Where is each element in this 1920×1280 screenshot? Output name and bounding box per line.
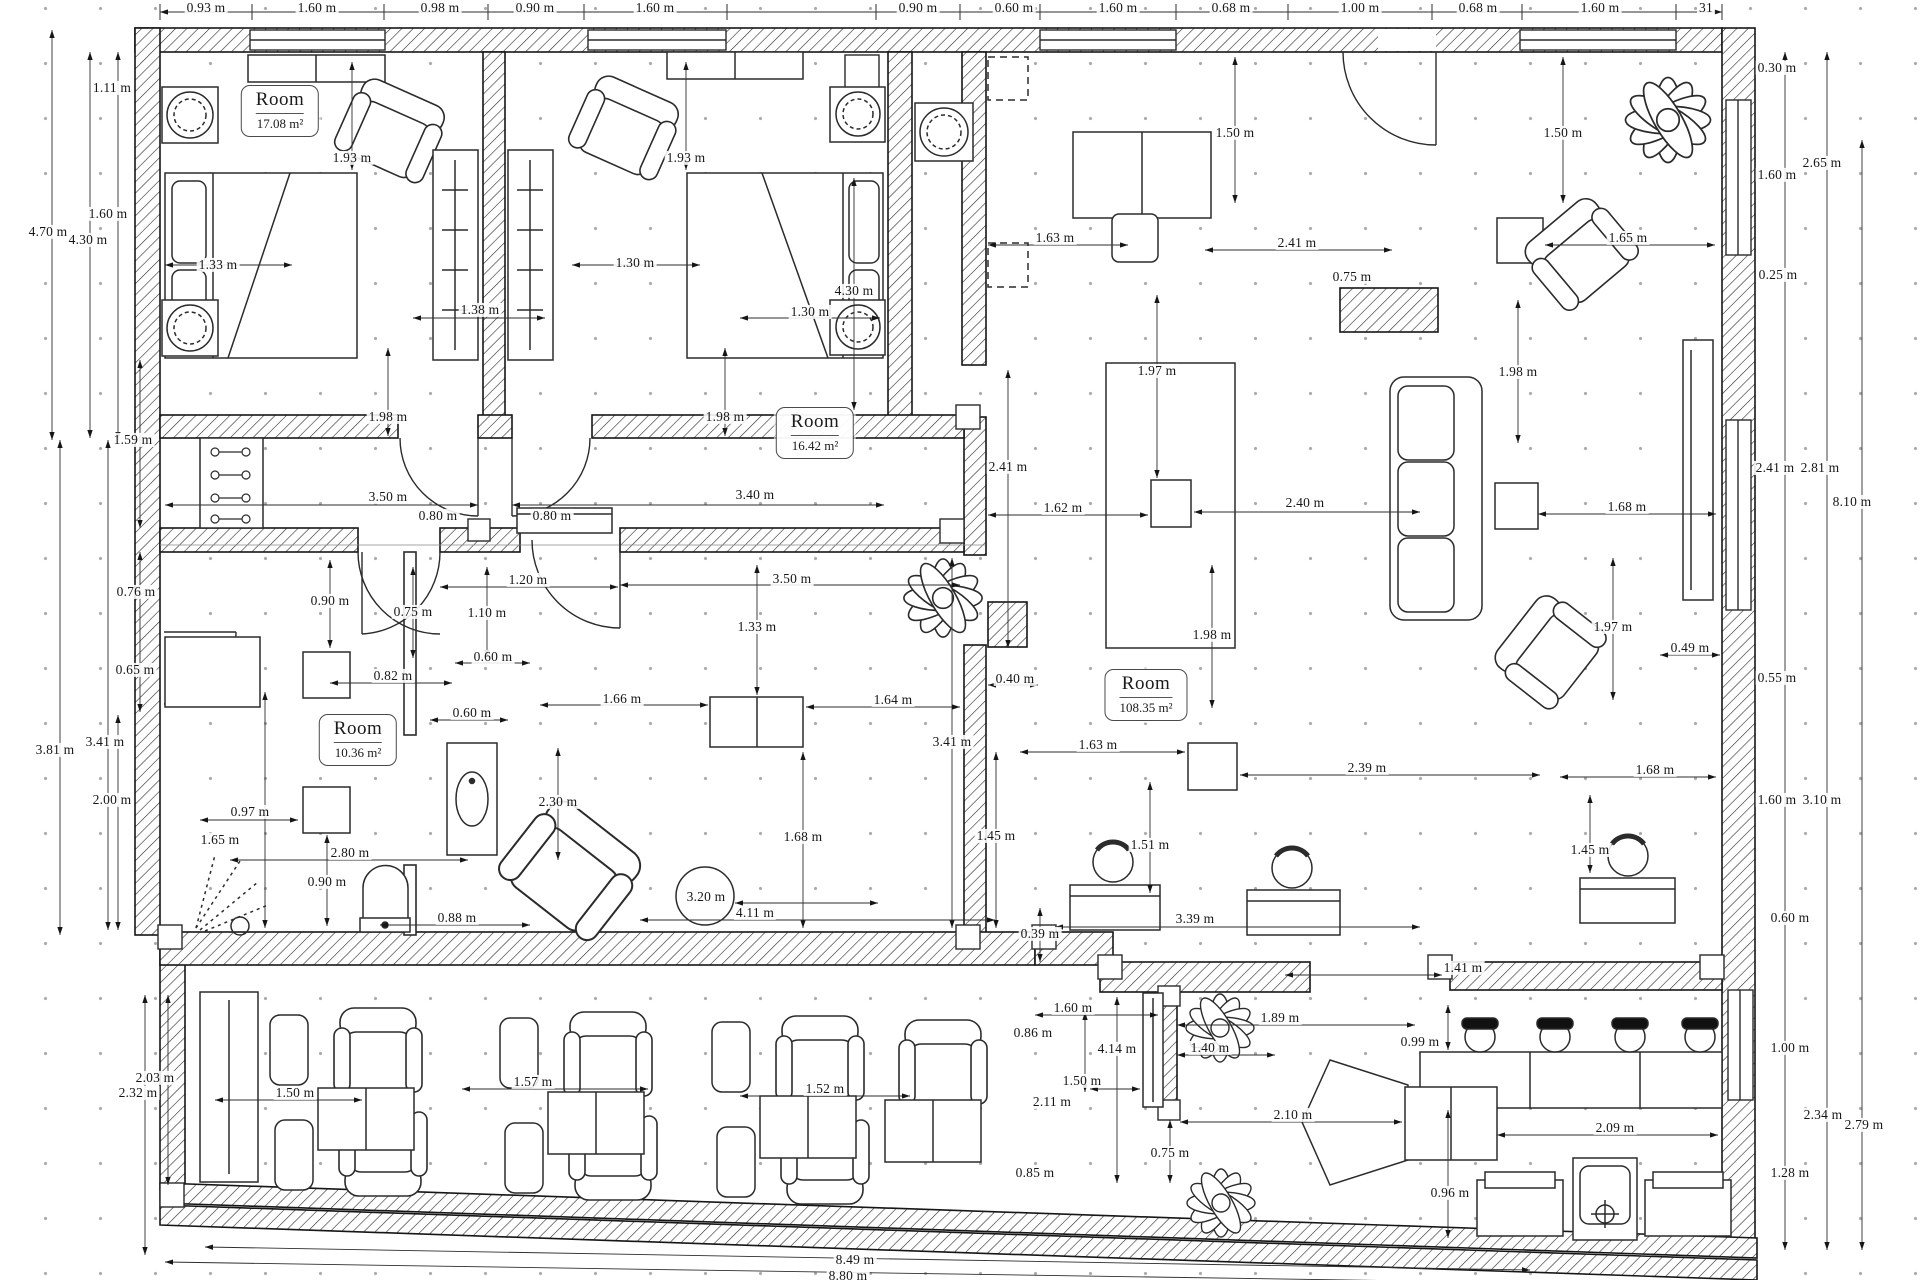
nightstand-icon <box>830 87 885 142</box>
bench-icon <box>1070 885 1160 930</box>
window-icon <box>588 30 726 50</box>
sink-icon <box>1573 1158 1637 1240</box>
sideboard-icon <box>517 508 612 533</box>
furniture-layer <box>162 52 1731 1240</box>
bench-icon <box>1580 878 1675 923</box>
door-icon <box>362 552 440 634</box>
window-icon <box>1040 30 1176 50</box>
floor-plan-drawing <box>0 0 1920 1280</box>
square-table-pair <box>1405 1087 1497 1160</box>
bar-stool-icon <box>1537 1018 1573 1052</box>
side-table <box>303 787 350 833</box>
desk-icon <box>1073 132 1211 262</box>
window-icon <box>250 30 385 50</box>
washer-icon <box>915 103 973 161</box>
coffee-table <box>1495 483 1538 529</box>
cinema-group <box>500 1012 657 1200</box>
floor-plan: 0.93 m1.60 m0.98 m0.90 m1.60 m0.90 m0.60… <box>0 0 1920 1280</box>
window-icon <box>1726 100 1751 255</box>
long-table <box>1106 363 1235 648</box>
fixture-niche <box>988 243 1028 287</box>
bench-icon <box>1645 1172 1731 1236</box>
cabinet-icon <box>165 637 260 707</box>
nightstand-icon <box>162 87 218 143</box>
square-table <box>1188 743 1237 790</box>
bar-stool-icon <box>1682 1018 1718 1052</box>
door-icon <box>512 438 590 516</box>
tv-cabinet <box>1683 340 1713 600</box>
bench-icon <box>1247 890 1340 935</box>
sofa-icon <box>1390 377 1482 620</box>
window-sill <box>248 55 385 82</box>
nightstand-icon <box>830 300 885 355</box>
window-icon <box>1728 990 1753 1100</box>
wardrobe-icon <box>433 150 478 360</box>
door-icon <box>400 438 478 516</box>
window-sill <box>667 52 803 79</box>
cinema-group <box>885 1020 987 1162</box>
round-stool <box>676 867 734 925</box>
hall-table <box>710 697 803 747</box>
cinema-group <box>712 1016 869 1204</box>
corner-chair <box>1302 1060 1408 1185</box>
vanity-icon <box>447 743 497 855</box>
bar-stool-icon <box>1462 1018 1498 1052</box>
bench-icon <box>1477 1172 1563 1236</box>
cinema-group <box>270 1008 427 1196</box>
door-icon <box>1343 52 1436 145</box>
coat-rack-icon <box>200 438 263 528</box>
wardrobe-icon <box>508 150 553 360</box>
side-table <box>303 652 350 698</box>
door-icon <box>358 552 440 634</box>
radiator-icon <box>1143 993 1163 1107</box>
screen-icon <box>200 992 258 1182</box>
door-icon <box>532 540 620 628</box>
window-icon <box>1520 30 1676 50</box>
shower-icon <box>196 855 268 935</box>
nightstand-icon <box>162 300 218 356</box>
toilet-icon <box>360 866 410 933</box>
window-icon <box>1726 420 1751 610</box>
fixture-niche <box>988 57 1028 100</box>
bar-stool-icon <box>1612 1018 1648 1052</box>
